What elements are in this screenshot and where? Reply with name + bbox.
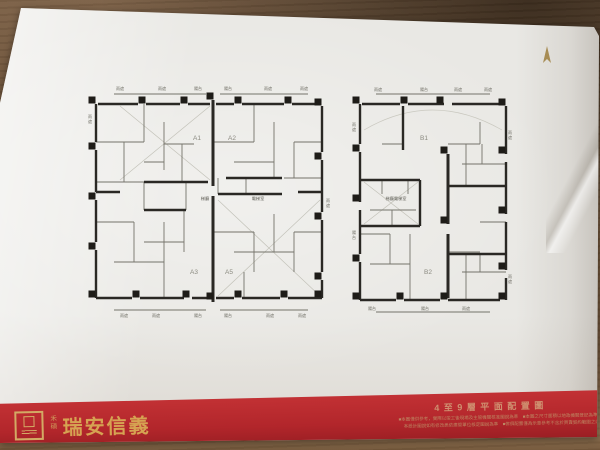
sheet-title: 4至9層平面配置圖 [434, 398, 548, 414]
svg-text:雨遮: 雨遮 [298, 312, 306, 318]
north-arrow-icon [540, 46, 554, 66]
svg-text:雨遮: 雨遮 [152, 312, 160, 318]
svg-text:A2: A2 [228, 135, 236, 142]
svg-text:陽台: 陽台 [368, 305, 376, 311]
svg-text:陽台: 陽台 [224, 312, 232, 318]
svg-text:雨遮: 雨遮 [508, 130, 512, 140]
paper-crease [546, 118, 600, 253]
svg-text:雨遮: 雨遮 [158, 85, 166, 91]
svg-text:雨遮: 雨遮 [88, 114, 92, 124]
svg-text:電梯室: 電梯室 [252, 195, 265, 202]
svg-text:雨遮: 雨遮 [266, 312, 274, 318]
floor-plan-tower-b: 雨遮陽台雨遮雨遮陽台陽台雨遮雨遮陽台雨遮雨遮梯廳電梯室B1B2 [352, 86, 514, 318]
svg-text:陽台: 陽台 [224, 85, 232, 91]
svg-text:雨遮: 雨遮 [326, 198, 330, 208]
svg-text:A3: A3 [190, 269, 198, 276]
paper-sheet: 雨遮雨遮陽台陽台雨遮雨遮雨遮雨遮陽台陽台雨遮雨遮雨遮雨遮梯廳電梯室A1A2A3A… [0, 0, 600, 450]
svg-text:雨遮: 雨遮 [508, 274, 512, 284]
paper-wrap: 雨遮雨遮陽台陽台雨遮雨遮雨遮雨遮陽台陽台雨遮雨遮雨遮雨遮梯廳電梯室A1A2A3A… [0, 0, 600, 450]
svg-text:雨遮: 雨遮 [484, 86, 492, 92]
developer-logo-inner-square [23, 416, 34, 427]
footer-band: 禾碩 瑞安信義 4至9層平面配置圖 ■本圖僅供參考，實際以竣工後現場及主管機關核… [0, 390, 600, 450]
svg-text:陽台: 陽台 [194, 312, 202, 318]
floor-plan-tower-a: 雨遮雨遮陽台陽台雨遮雨遮雨遮雨遮陽台陽台雨遮雨遮雨遮雨遮梯廳電梯室A1A2A3A… [86, 84, 332, 320]
developer-logo-caption-lines [22, 429, 37, 434]
svg-text:B1: B1 [420, 135, 428, 142]
svg-text:雨遮: 雨遮 [120, 312, 128, 318]
svg-text:陽台: 陽台 [420, 86, 428, 92]
svg-text:雨遮: 雨遮 [454, 86, 462, 92]
svg-text:A5: A5 [225, 269, 233, 276]
developer-logo-icon [14, 411, 44, 441]
svg-text:陽台: 陽台 [421, 305, 429, 311]
developer-name-small: 禾碩 [50, 415, 58, 431]
svg-text:梯廳電梯室: 梯廳電梯室 [386, 195, 407, 202]
svg-text:梯廳: 梯廳 [201, 195, 210, 202]
svg-text:雨遮: 雨遮 [116, 85, 124, 91]
svg-text:陽台: 陽台 [194, 85, 202, 91]
svg-text:雨遮: 雨遮 [352, 122, 356, 132]
svg-text:雨遮: 雨遮 [374, 86, 382, 92]
svg-text:雨遮: 雨遮 [462, 305, 470, 311]
svg-text:A1: A1 [193, 135, 201, 142]
svg-text:雨遮: 雨遮 [300, 85, 308, 91]
project-brand-name: 瑞安信義 [62, 409, 151, 440]
photo-of-floor-plan-sheet: 雨遮雨遮陽台陽台雨遮雨遮雨遮雨遮陽台陽台雨遮雨遮雨遮雨遮梯廳電梯室A1A2A3A… [0, 0, 600, 450]
svg-text:雨遮: 雨遮 [264, 85, 272, 91]
svg-text:B2: B2 [424, 269, 432, 276]
svg-text:陽台: 陽台 [352, 229, 356, 240]
